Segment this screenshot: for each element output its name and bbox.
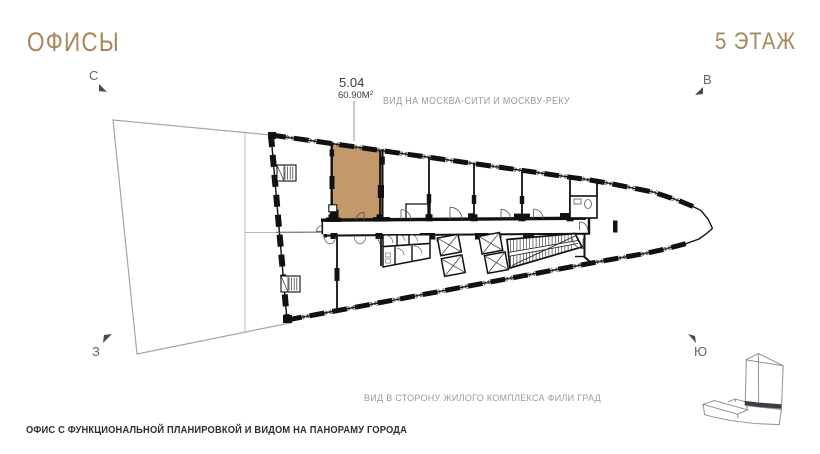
svg-text:ОФИСЫ: ОФИСЫ: [27, 27, 120, 57]
svg-text:З: З: [92, 344, 100, 359]
svg-text:ВИД НА МОСКВА-СИТИ И МОСКВУ-РЕ: ВИД НА МОСКВА-СИТИ И МОСКВУ-РЕКУ: [383, 96, 570, 107]
svg-text:В: В: [703, 72, 712, 87]
svg-text:5 ЭТАЖ: 5 ЭТАЖ: [715, 28, 796, 55]
svg-text:60.90М2: 60.90М2: [338, 90, 374, 101]
svg-text:ВИД В СТОРОНУ ЖИЛОГО КОМПЛЕКСА: ВИД В СТОРОНУ ЖИЛОГО КОМПЛЕКСА ФИЛИ ГРАД: [364, 393, 601, 404]
svg-text:С: С: [89, 68, 98, 83]
svg-text:Ю: Ю: [694, 344, 707, 359]
svg-text:ОФИС С ФУНКЦИОНАЛЬНОЙ ПЛАНИРОВ: ОФИС С ФУНКЦИОНАЛЬНОЙ ПЛАНИРОВКОЙ И ВИДО…: [26, 423, 407, 436]
svg-text:5.04: 5.04: [339, 75, 364, 90]
